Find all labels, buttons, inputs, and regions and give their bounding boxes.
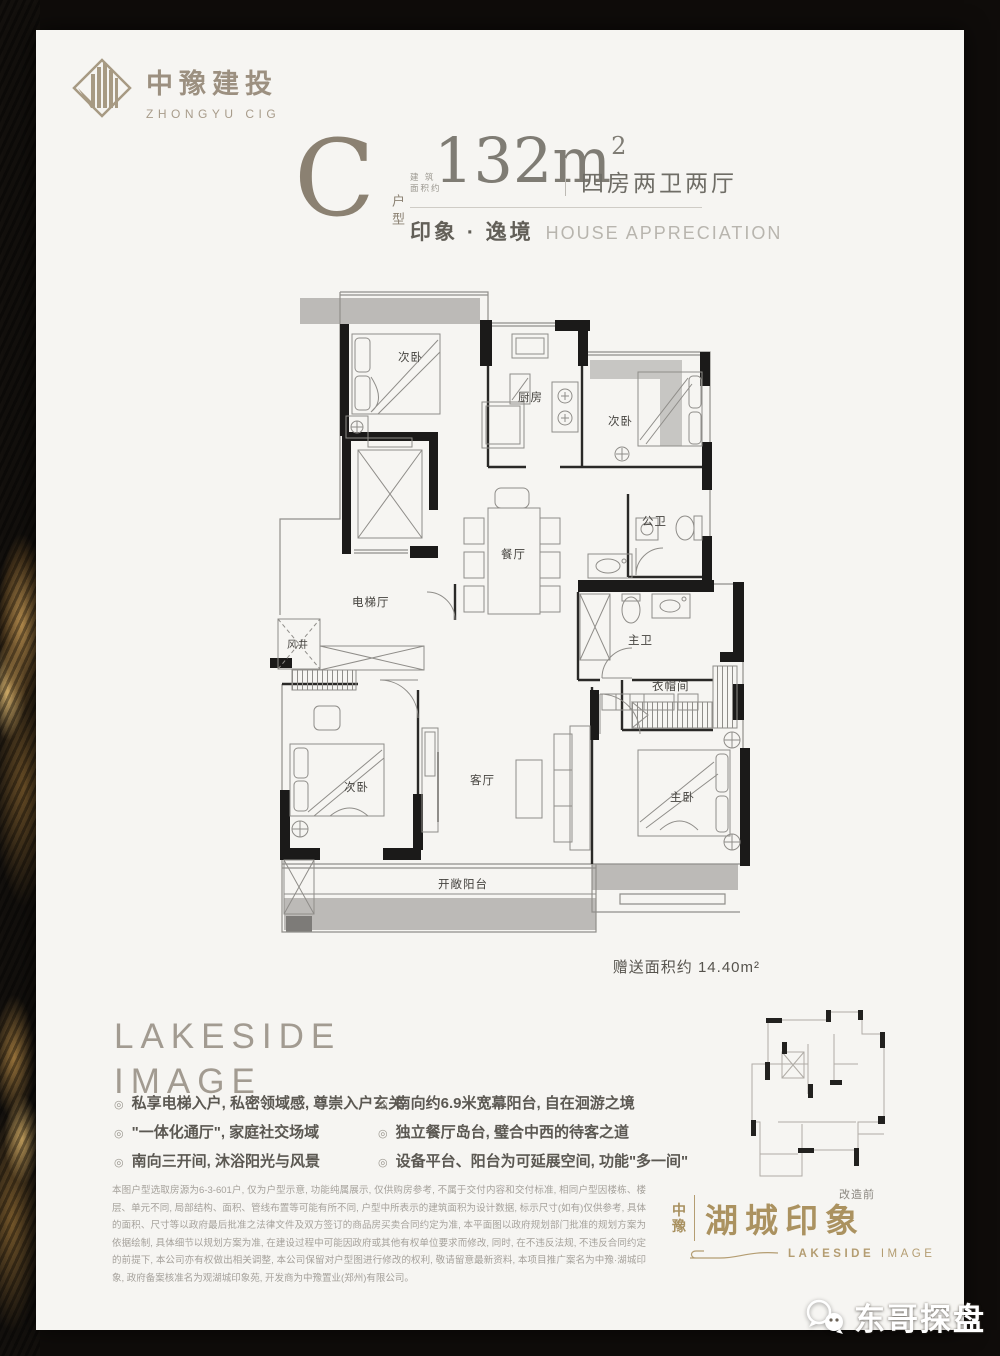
brand-prefix: 中 豫 bbox=[672, 1202, 686, 1234]
brand-name-en: LAKESIDE IMAGE bbox=[788, 1248, 935, 1260]
feature-item: ◎南向约6.9米宽幕阳台, 自在洄游之境 bbox=[378, 1092, 688, 1121]
feature-item: ◎设备平台、阳台为可延展空间, 功能"多一间" bbox=[378, 1150, 688, 1179]
brand-prefix-char: 中 bbox=[672, 1202, 686, 1218]
room-label: 餐厅 bbox=[501, 547, 526, 561]
mini-floor-plan bbox=[738, 1004, 894, 1190]
room-label: 客厅 bbox=[470, 773, 495, 787]
room-label: 风井 bbox=[287, 638, 309, 651]
feature-text: 私享电梯入户, 私密领域感, 尊崇入户玄关 bbox=[132, 1092, 404, 1113]
room-label: 次卧 bbox=[608, 414, 633, 428]
watermark: 东哥探盘 bbox=[804, 1294, 986, 1339]
room-label: 开敞阳台 bbox=[438, 877, 488, 891]
bullet-icon: ◎ bbox=[114, 1098, 124, 1111]
room-label: 衣帽间 bbox=[652, 679, 690, 693]
project-brand: 中 豫 湖城印象 LAKESIDE IMAGE bbox=[672, 1194, 935, 1261]
floor-plan: 次卧 厨房 次卧 公卫 餐厅 电梯厅 风井 主卫 衣帽间 次卧 客厅 主卧 开敞… bbox=[270, 282, 776, 944]
unit-type-label: 户型 bbox=[388, 194, 407, 230]
logo-name-en: ZHONGYU CIG bbox=[146, 107, 280, 121]
room-label: 公卫 bbox=[642, 515, 667, 528]
feature-item: ◎独立餐厅岛台, 璧合中西的待客之道 bbox=[378, 1121, 688, 1150]
bullet-icon: ◎ bbox=[378, 1156, 388, 1169]
feature-list-left: ◎私享电梯入户, 私密领域感, 尊崇入户玄关 ◎"一体化通厅", 家庭社交场域 … bbox=[114, 1092, 403, 1179]
room-label: 次卧 bbox=[344, 780, 369, 794]
room-label: 主卧 bbox=[670, 791, 695, 804]
room-label: 主卫 bbox=[628, 634, 653, 647]
chat-bubbles-icon bbox=[804, 1298, 848, 1336]
unit-type-letter: C bbox=[294, 126, 375, 232]
feature-text: "一体化通厅", 家庭社交场域 bbox=[132, 1121, 320, 1142]
wave-ornament-icon bbox=[686, 1247, 778, 1261]
poster-sheet: 中豫建投 ZHONGYU CIG C 户型 建 筑 面积约 132m2 四房两卫… bbox=[36, 30, 964, 1330]
section-title-line1: LAKESIDE bbox=[114, 1014, 341, 1059]
bullet-icon: ◎ bbox=[378, 1098, 388, 1111]
feature-list-right: ◎南向约6.9米宽幕阳台, 自在洄游之境 ◎独立餐厅岛台, 璧合中西的待客之道 … bbox=[378, 1092, 688, 1179]
brand-name: 湖城印象 bbox=[705, 1194, 865, 1242]
tagline-en: HOUSE APPRECIATION bbox=[546, 223, 783, 244]
brand-en-bold: LAKESIDE bbox=[788, 1248, 874, 1260]
brand-en-light: IMAGE bbox=[881, 1248, 936, 1260]
feature-item: ◎私享电梯入户, 私密领域感, 尊崇入户玄关 bbox=[114, 1092, 403, 1121]
bullet-icon: ◎ bbox=[114, 1156, 124, 1169]
room-label: 次卧 bbox=[398, 350, 423, 364]
tagline-cn: 印象 · 逸境 bbox=[410, 216, 534, 246]
gold-marble-texture bbox=[0, 0, 40, 1356]
brand-prefix-char: 豫 bbox=[672, 1218, 686, 1234]
feature-item: ◎南向三开间, 沐浴阳光与风景 bbox=[114, 1150, 403, 1179]
room-label: 厨房 bbox=[518, 391, 543, 404]
feature-text: 独立餐厅岛台, 璧合中西的待客之道 bbox=[396, 1121, 629, 1142]
developer-logo: 中豫建投 ZHONGYU CIG bbox=[70, 54, 280, 121]
tagline: 印象 · 逸境 HOUSE APPRECIATION bbox=[410, 216, 782, 246]
building-diamond-icon bbox=[70, 54, 134, 120]
brand-divider bbox=[694, 1195, 695, 1241]
watermark-text: 东哥探盘 bbox=[854, 1294, 986, 1339]
rooms-summary: 四房两卫两厅 bbox=[581, 164, 737, 198]
poster-frame: 中豫建投 ZHONGYU CIG C 户型 建 筑 面积约 132m2 四房两卫… bbox=[0, 0, 1000, 1356]
logo-name-cn: 中豫建投 bbox=[146, 62, 280, 101]
bullet-icon: ◎ bbox=[114, 1127, 124, 1140]
header-divider bbox=[565, 158, 566, 196]
bonus-area-note: 赠送面积约 14.40m² bbox=[592, 956, 760, 977]
bullet-icon: ◎ bbox=[378, 1127, 388, 1140]
room-label: 电梯厅 bbox=[352, 596, 390, 609]
legal-disclaimer: 本图户型选取房源为6-3-601户, 仅为户型示意, 功能纯属展示, 仅供购房参… bbox=[112, 1182, 646, 1287]
feature-text: 设备平台、阳台为可延展空间, 功能"多一间" bbox=[396, 1150, 689, 1171]
feature-text: 南向约6.9米宽幕阳台, 自在洄游之境 bbox=[396, 1092, 635, 1113]
section-title: LAKESIDE IMAGE bbox=[114, 1014, 341, 1104]
feature-item: ◎"一体化通厅", 家庭社交场域 bbox=[114, 1121, 403, 1150]
feature-text: 南向三开间, 沐浴阳光与风景 bbox=[132, 1150, 320, 1171]
area-exponent: 2 bbox=[611, 132, 626, 160]
header-rule bbox=[410, 207, 702, 208]
